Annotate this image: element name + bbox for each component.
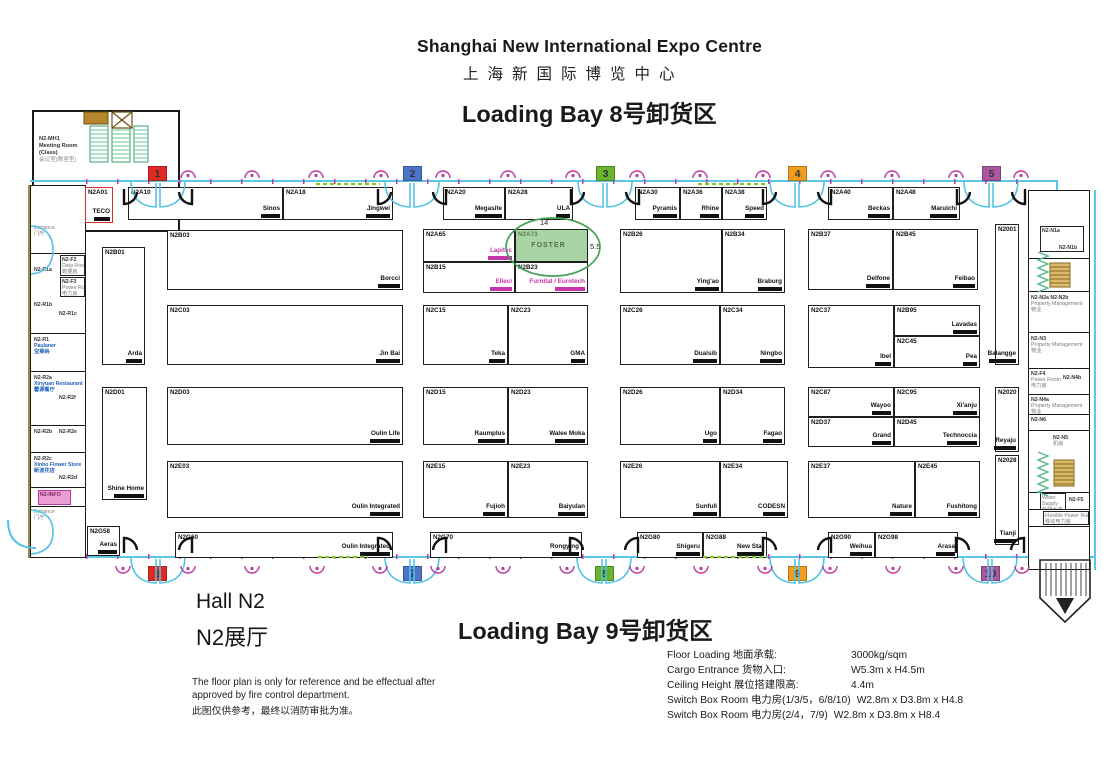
exhibitor-name: Furnital / Eurotech (529, 279, 585, 291)
booth-N2C23: N2C23GMA (508, 305, 588, 365)
spec-value: W2.8m x D3.8m x H4.8 (857, 695, 963, 706)
service-room: WaterSupply给排水房 (1040, 493, 1066, 510)
exhibitor-cn-name (556, 214, 570, 219)
room-label: N2-R2b (34, 429, 58, 435)
booth-id: N2C95 (897, 389, 917, 396)
exhibitor-cn-name (872, 441, 891, 446)
exhibitor-cn-name (737, 552, 764, 557)
exhibitor-cn-name (370, 512, 400, 517)
exhibitor-name: Fujioh (483, 504, 505, 516)
exhibitor-name: Sunfull (693, 504, 717, 516)
booth-id: N2E34 (723, 463, 742, 470)
exhibitor-cn-name (552, 552, 579, 557)
booth-id: N2A18 (286, 189, 306, 196)
spec-label: Switch Box Room 电力房(2/4，7/9) (667, 710, 828, 721)
booth-N2001: N2001Balangge (995, 224, 1019, 365)
exhibitor-name: Dualsib (693, 351, 717, 363)
booth-N2G88: N2G88New Star (703, 532, 767, 558)
exhibitor-cn-name (370, 439, 400, 444)
booth-N2A30: N2A30Pyramis (635, 187, 680, 220)
booth-id: N2A73 (518, 231, 538, 238)
booth-id: N2A65 (426, 231, 446, 238)
exhibitor-cn-name (963, 362, 977, 367)
service-room: N2-R2e (58, 428, 84, 439)
room-label: 物业 (1031, 409, 1087, 414)
booth-id: N2B15 (426, 264, 446, 271)
exhibitor-name: Jin Bai (376, 351, 400, 363)
booth-N2G98: N2G98Arasa (875, 532, 958, 558)
spec-row: Switch Box Room 电力房(2/4，7/9)W2.8m x D3.8… (667, 708, 963, 723)
exhibitor-name: Weihua (850, 544, 872, 556)
exhibitor-name: Balangge (988, 351, 1016, 363)
booth-id: N2G90 (831, 534, 851, 541)
exhibitor-cn-name (994, 446, 1016, 451)
exhibitor-name: Raumplus (475, 431, 505, 443)
booth-id: N2B95 (897, 307, 917, 314)
exhibitor-cn-name (703, 439, 717, 444)
exhibitor-cn-name (758, 287, 782, 292)
booth-N2A01: N2A01TECO (85, 187, 113, 223)
exhibitor-cn-name (890, 512, 912, 517)
spec-row: Ceiling Height 展位搭建限高:4.4m (667, 678, 963, 693)
exhibitor-name: Oulin Integrated (352, 504, 400, 516)
exhibitor-name: Wayoo (871, 403, 891, 415)
room-label: N2-R1a (34, 267, 58, 273)
booth-id: N2D23 (511, 389, 531, 396)
exhibitor-cn-name (868, 214, 890, 219)
booth-id: N2B37 (811, 231, 831, 238)
exhibitor-name: Lavadas (952, 322, 977, 334)
exhibitor-cn-name (693, 512, 717, 517)
exhibitor-name: Technoccia (943, 433, 977, 445)
booth-N2B34: N2B34Braburg (722, 229, 785, 293)
service-room: N2-N4b (1062, 374, 1090, 385)
booth-id: N2G88 (706, 534, 726, 541)
booth-id: N2D45 (897, 419, 917, 426)
hall-name-cn: N2展厅 (196, 620, 268, 652)
booth-N2G58: N2G58Aeras (87, 526, 120, 556)
exhibitor-cn-name (930, 214, 957, 219)
exhibitor-name: Arasa (936, 544, 955, 556)
booth-N2A36: N2A36Rhine (680, 187, 722, 220)
exhibitor-cn-name (953, 330, 977, 335)
venue-title-cn: 上海新国际博览中心 (463, 62, 684, 84)
exhibitor-cn-name (745, 214, 764, 219)
exhibitor-name: GMA (570, 351, 585, 363)
service-room: N2-N1b (1058, 244, 1088, 255)
booth-N2D15: N2D15Raumplus (423, 387, 508, 445)
room-label: 电力房 (62, 291, 83, 297)
room-label: 物业 (1031, 348, 1087, 354)
booth-id: N2C03 (170, 307, 190, 314)
booth-N2B03: N2B03Borcci (167, 230, 403, 290)
booth-N2C34: N2C34Ningbo (720, 305, 785, 365)
exhibitor-name: Ningbo (760, 351, 782, 363)
exhibitor-cn-name (376, 359, 400, 364)
spec-value: W5.3m x H4.5m (851, 665, 925, 676)
exhibitor-cn-name (872, 411, 891, 416)
exhibitor-name: Baiyulan (558, 504, 585, 516)
booth-N2A48: N2A48Maruichi (893, 187, 960, 220)
service-room: N2-R1b (33, 301, 59, 312)
exhibitor-name: New Star (737, 544, 764, 556)
booth-id: N2C15 (426, 307, 446, 314)
exhibitor-name: Aeras (98, 542, 117, 554)
booth-id: N2B03 (170, 232, 190, 239)
booth-N2A73: N2A73FOSTER (515, 229, 588, 262)
booth-N2C45: N2C45Pea (894, 336, 980, 368)
hall-wall (1094, 190, 1096, 570)
booth-N2E34: N2E34CODESN (720, 461, 788, 518)
exhibitor-name: Sinos (261, 206, 280, 218)
room-divider (30, 487, 86, 488)
exhibitor-cn-name (360, 552, 390, 557)
exhibitor-name: Lapitec (488, 248, 512, 260)
disclaimer: The floor plan is only for reference and… (192, 676, 435, 718)
booth-N2E23: N2E23Baiyulan (508, 461, 588, 518)
exhibitor-name: Oulin Integrated (342, 544, 390, 556)
room-label: N2-R1c (59, 311, 83, 317)
gate-marker-2: 2 (403, 166, 422, 181)
room-label: N2-R1b (34, 302, 58, 308)
exhibitor-name: Shigeru (676, 544, 700, 556)
gate-marker-6: 6 (148, 566, 167, 581)
booth-id: N2A20 (446, 189, 466, 196)
booth-id: N2C87 (811, 389, 831, 396)
exhibitor-cn-name (98, 550, 117, 555)
booth-N2G60: N2G60Oulin Integrated (175, 532, 393, 558)
room-divider (1028, 332, 1090, 333)
booth-id: N2001 (998, 226, 1017, 233)
service-room: N2-N5机房 (1052, 434, 1078, 451)
booth-id: N2B26 (623, 231, 643, 238)
booth-N2D45: N2D45Technoccia (894, 417, 980, 447)
exhibitor-cn-name (763, 512, 785, 517)
gate-marker-9: 9 (788, 566, 807, 581)
room-label: N2-N1b (1059, 245, 1087, 251)
booth-id: N2G98 (878, 534, 898, 541)
service-room: N2-INFO (38, 490, 71, 505)
booth-N2D34: N2D34Fagao (720, 387, 785, 445)
venue-title-en: Shanghai New International Expo Centre (417, 36, 762, 57)
booth-N2G70: N2G70Rongying (430, 532, 582, 558)
room-label: N2-N1a (1042, 228, 1082, 234)
room-label: 移动电力房 (1045, 519, 1087, 525)
booth-N2B23: N2B23Furnital / Eurotech (515, 262, 588, 293)
service-room: N2-N6 (1030, 416, 1056, 427)
booth-id: N2D37 (811, 419, 831, 426)
booth-N2A38: N2A38Speed (722, 187, 767, 220)
booth-id: N2E03 (170, 463, 189, 470)
booth-N2G90: N2G90Weihua (828, 532, 875, 558)
room-label: 馨源餐厅 (34, 387, 84, 393)
booth-N2D01: N2D01Shine Home (102, 387, 147, 500)
exhibitor-name: Ying'ao (695, 279, 719, 291)
exhibitor-cn-name (953, 411, 977, 416)
exhibitor-cn-name (488, 256, 512, 261)
exhibitor-name: Braburg (758, 279, 783, 291)
booth-id: N2A01 (88, 189, 108, 196)
exhibitor-cn-name (555, 439, 585, 444)
booth-N2A28: N2A28ULA (505, 187, 573, 220)
room-label: 电力房 (1031, 383, 1060, 389)
exhibitor-cn-name (555, 287, 585, 292)
booth-N2C26: N2C26Dualsib (620, 305, 720, 365)
booth-N2D03: N2D03Oulin Life (167, 387, 403, 445)
exhibitor-cn-name (875, 362, 891, 367)
room-label: N2-INFO (40, 492, 69, 498)
exhibitor-name: Feibao (953, 276, 975, 288)
room-label: 数据房 (62, 269, 83, 275)
booth-N2C37: N2C37Ibel (808, 305, 894, 368)
booth-id: N2A36 (683, 189, 703, 196)
exhibitor-name: Fagao (763, 431, 782, 443)
booth-id: N2A28 (508, 189, 528, 196)
booth-N2A18: N2A18Jingwei (283, 187, 393, 220)
service-room: N2-R2b (33, 428, 59, 439)
floor-plan-page: Shanghai New International Expo Centre 上… (0, 0, 1114, 767)
service-room: Entrance门厅 (33, 224, 83, 254)
exhibitor-cn-name (126, 359, 142, 364)
booth-id: N2C23 (511, 307, 531, 314)
service-room: Flexible Power Room移动电力房 (1043, 511, 1089, 525)
exhibitor-cn-name (94, 217, 110, 222)
service-room: N2-R1a (33, 266, 59, 277)
booth-id: N2C34 (723, 307, 743, 314)
booth-id: N2B34 (725, 231, 745, 238)
exhibitor-cn-name (653, 214, 677, 219)
exhibitor-name: Tianji (994, 531, 1016, 543)
room-label: 物业 (1031, 307, 1087, 313)
booth-id: N2E37 (811, 463, 830, 470)
exhibitor-cn-name (490, 287, 512, 292)
gate-marker-3: 3 (596, 166, 615, 181)
room-label: N2-F5 (1069, 497, 1089, 503)
booth-id: N2A38 (725, 189, 745, 196)
room-divider (30, 333, 86, 334)
service-room: N2-R2f (58, 394, 84, 405)
exhibitor-cn-name (953, 284, 975, 289)
service-room: N2-F5 (1068, 496, 1090, 507)
spec-value: 3000kg/sqm (851, 650, 907, 661)
exhibitor-name: Megasite (475, 206, 502, 218)
exhibitor-cn-name (866, 284, 890, 289)
exhibitor-name: Speed (745, 206, 764, 218)
exhibitor-name: Grand (872, 433, 891, 445)
room-label: N2-N4b (1063, 375, 1089, 381)
exhibitor-name: Nature (890, 504, 912, 516)
booth-N2D26: N2D26Ugo (620, 387, 720, 445)
spec-value: W2.8m x D3.8m x H8.4 (834, 710, 940, 721)
booth-id: N2G58 (90, 528, 110, 535)
booth-id: N2C26 (623, 307, 643, 314)
spec-row: Floor Loading 地面承载:3000kg/sqm (667, 648, 963, 663)
booth-N2G80: N2G80Shigeru (637, 532, 703, 558)
booth-id: N2A48 (896, 189, 916, 196)
room-divider (1028, 291, 1090, 292)
gate-marker-1: 1 (148, 166, 167, 181)
exhibitor-name: Ibel (875, 354, 891, 366)
room-divider (30, 425, 86, 426)
room-label: N2-N6 (1031, 417, 1055, 423)
booth-id: N2020 (998, 389, 1017, 396)
service-room: N2-F2Data Room数据房 (60, 255, 85, 276)
booth-N2A20: N2A20Megasite (443, 187, 505, 220)
booth-id: N2028 (998, 457, 1017, 464)
spec-label: Cargo Entrance 货物入口: (667, 663, 845, 678)
exhibitor-name: Beckas (868, 206, 890, 218)
gate-marker-4: 4 (788, 166, 807, 181)
booth-N2C95: N2C95Xi'anju (894, 387, 980, 417)
exhibitor-cn-name (483, 512, 505, 517)
booth-id: N2C45 (897, 338, 917, 345)
exhibitor-name: Rongying (550, 544, 579, 556)
booth-N2020: N2020Reyaju (995, 387, 1019, 452)
booth-id: N2C37 (811, 307, 831, 314)
room-divider (1028, 258, 1090, 259)
exhibitor-cn-name (489, 359, 505, 364)
booth-id: N2E26 (623, 463, 642, 470)
service-room: N2-R2d (58, 474, 84, 485)
booth-id: N2A10 (131, 189, 151, 196)
booth-id: N2E45 (918, 463, 937, 470)
gate-marker-10: 10 (981, 566, 1000, 581)
exhibitor-cn-name (378, 284, 400, 289)
service-room: N2-F4Power Room电力房 (1030, 370, 1061, 393)
exhibitor-name: Xi'anju (953, 403, 977, 415)
booth-id: N2D26 (623, 389, 643, 396)
exhibitor-cn-name (114, 494, 144, 499)
booth-N2028: N2028Tianji (995, 455, 1019, 545)
booth-N2D37: N2D37Grand (808, 417, 894, 447)
exhibitor-name: Teka (489, 351, 505, 363)
exhibitor-name: Walee Moka (549, 431, 585, 443)
booth-id: N2E15 (426, 463, 445, 470)
booth-id: N2D03 (170, 389, 190, 396)
spec-row: Cargo Entrance 货物入口:W5.3m x H4.5m (667, 663, 963, 678)
wall-ticks (86, 179, 1018, 184)
booth-id: N2D34 (723, 389, 743, 396)
exhibitor-name: Jingwei (366, 206, 390, 218)
room-divider (30, 452, 86, 453)
exhibitor-cn-name (700, 214, 719, 219)
loading-bay-8-title: Loading Bay 8号卸货区 (462, 95, 717, 129)
exhibitor-cn-name (695, 287, 719, 292)
room-label: 门厅 (34, 515, 82, 521)
booth-id: N2G70 (433, 534, 453, 541)
service-room: Entrance门厅 (33, 508, 83, 536)
spec-label: Ceiling Height 展位搭建限高: (667, 678, 845, 693)
booth-N2E15: N2E15Fujioh (423, 461, 508, 518)
room-label: N2-R2f (59, 395, 83, 401)
exhibitor-name: ULA (556, 206, 570, 218)
exhibitor-cn-name (558, 512, 585, 517)
room-divider (1028, 526, 1090, 527)
service-room: N2-R1c (58, 310, 84, 321)
booth-N2E03: N2E03Oulin Integrated (167, 461, 403, 518)
exhibitor-name: Fushitong (947, 504, 977, 516)
service-room: N2-N4aProperty Management物业 (1030, 396, 1088, 414)
booth-id: N2B01 (105, 249, 125, 256)
exhibitor-name: Borcci (378, 276, 400, 288)
exhibitor-cn-name (261, 214, 280, 219)
exhibitor-name: Maruichi (930, 206, 957, 218)
gate-marker-8: 8 (595, 566, 614, 581)
exhibitor-cn-name (475, 214, 502, 219)
booth-N2D23: N2D23Walee Moka (508, 387, 588, 445)
room-divider (1028, 430, 1090, 431)
spec-row: Switch Box Room 电力房(1/3/5，6/8/10)W2.8m x… (667, 693, 963, 708)
room-label: 机房 (1053, 441, 1077, 447)
exhibitor-name: Shine Home (108, 486, 144, 498)
booth-N2B45: N2B45Feibao (893, 229, 978, 290)
booth-N2B95: N2B95Lavadas (894, 305, 980, 336)
exhibitor-name: Elleci (490, 279, 512, 291)
hall-name-en: Hall N2 (196, 590, 265, 614)
service-room: N2-F3Power Room电力房 (60, 277, 85, 297)
gate-marker-5: 5 (982, 166, 1001, 181)
exhibitor-name: TECO (93, 209, 111, 221)
exhibitor-name: FOSTER (516, 243, 581, 250)
meeting-room-label: N2-MH1 Meeting Room (Class) 会议室(教室型) (39, 136, 78, 164)
booth-id: N2B23 (518, 264, 538, 271)
booth-N2B15: N2B15Elleci (423, 262, 515, 293)
exhibitor-cn-name (994, 539, 1016, 544)
exhibitor-name: Oulin Life (370, 431, 400, 443)
booth-depth-dimension: 5.5 (590, 242, 600, 251)
booth-N2C87: N2C87Wayoo (808, 387, 894, 417)
exhibitor-name: Delfone (866, 276, 890, 288)
service-room: N2-N3Property Management物业 (1030, 335, 1088, 366)
booth-id: N2A40 (831, 189, 851, 196)
booth-N2A65: N2A65Lapitec (423, 229, 515, 262)
room-label: 门厅 (34, 231, 82, 237)
exhibitor-name: Arda (126, 351, 142, 363)
exhibitor-name: CODESN (758, 504, 785, 516)
exhibitor-cn-name (948, 512, 977, 517)
booth-N2C03: N2C03Jin Bai (167, 305, 403, 365)
exhibitor-name: Pyramis (652, 206, 677, 218)
booth-id: N2D15 (426, 389, 446, 396)
gate-marker-7: 7 (403, 566, 422, 581)
booth-N2E37: N2E37Nature (808, 461, 915, 518)
booth-id: N2B45 (896, 231, 916, 238)
exhibitor-cn-name (366, 214, 390, 219)
exhibitor-cn-name (571, 359, 585, 364)
booth-id: N2A30 (638, 189, 658, 196)
room-label: N2-R2d (59, 475, 83, 481)
exhibitor-cn-name (693, 359, 717, 364)
booth-N2C15: N2C15Teka (423, 305, 508, 365)
exhibitor-cn-name (760, 359, 782, 364)
spec-label: Switch Box Room 电力房(1/3/5，6/8/10) (667, 695, 851, 706)
booth-N2A40: N2A40Beckas (828, 187, 893, 220)
room-label: 给排水房 (1042, 507, 1064, 510)
exhibitor-cn-name (850, 552, 872, 557)
loading-bay-9-title: Loading Bay 9号卸货区 (458, 612, 713, 646)
exhibitor-cn-name (478, 439, 505, 444)
booth-N2B26: N2B26Ying'ao (620, 229, 722, 293)
service-room: N2-N2a N2-N2bProperty Management物业 (1030, 294, 1088, 330)
booth-id: N2G80 (640, 534, 660, 541)
booth-N2B37: N2B37Delfone (808, 229, 893, 290)
exhibitor-cn-name (936, 552, 955, 557)
room-divider (30, 371, 86, 372)
spec-value: 4.4m (851, 680, 874, 691)
exhibitor-cn-name (676, 552, 700, 557)
booth-N2B01: N2B01Arda (102, 247, 145, 365)
booth-N2E45: N2E45Fushitong (915, 461, 980, 518)
